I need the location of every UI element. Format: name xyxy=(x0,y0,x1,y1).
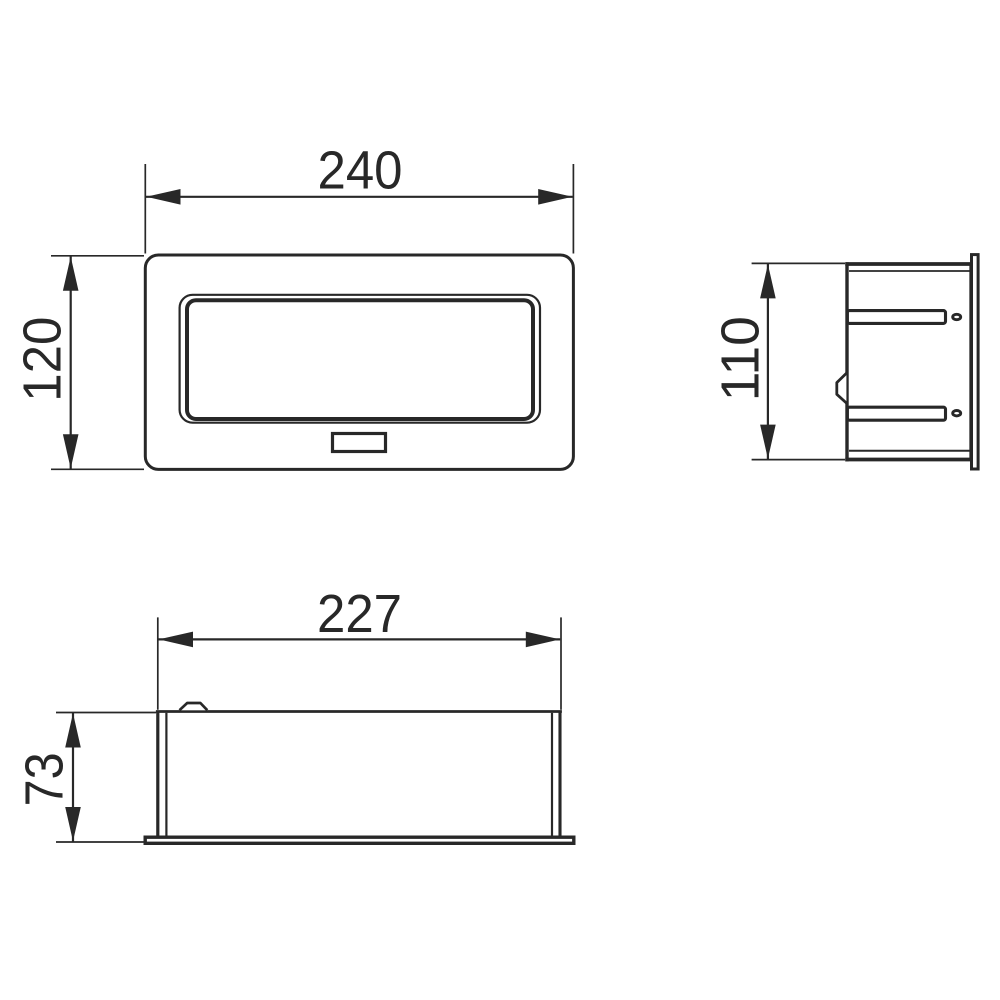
svg-text:227: 227 xyxy=(317,584,402,644)
svg-text:73: 73 xyxy=(15,752,75,806)
svg-text:240: 240 xyxy=(318,141,403,201)
svg-text:110: 110 xyxy=(711,316,771,401)
svg-text:120: 120 xyxy=(13,317,73,402)
